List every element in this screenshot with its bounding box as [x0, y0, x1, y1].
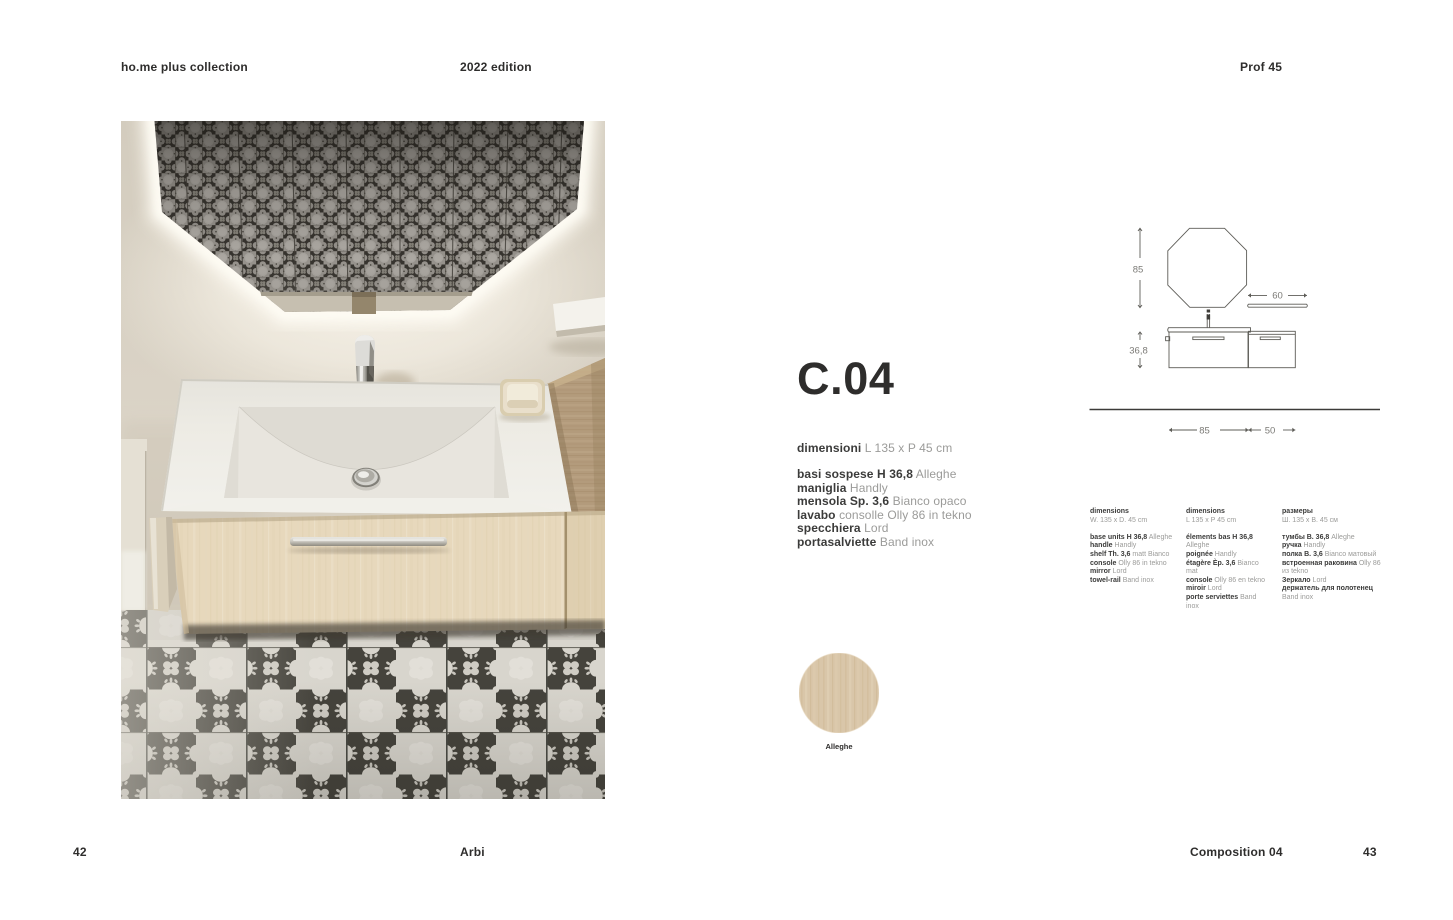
svg-text:36,8: 36,8	[1129, 346, 1148, 357]
svg-text:60: 60	[1272, 291, 1283, 302]
svg-text:85: 85	[1199, 425, 1210, 436]
svg-text:50: 50	[1265, 425, 1276, 436]
svg-text:85: 85	[1133, 265, 1144, 276]
